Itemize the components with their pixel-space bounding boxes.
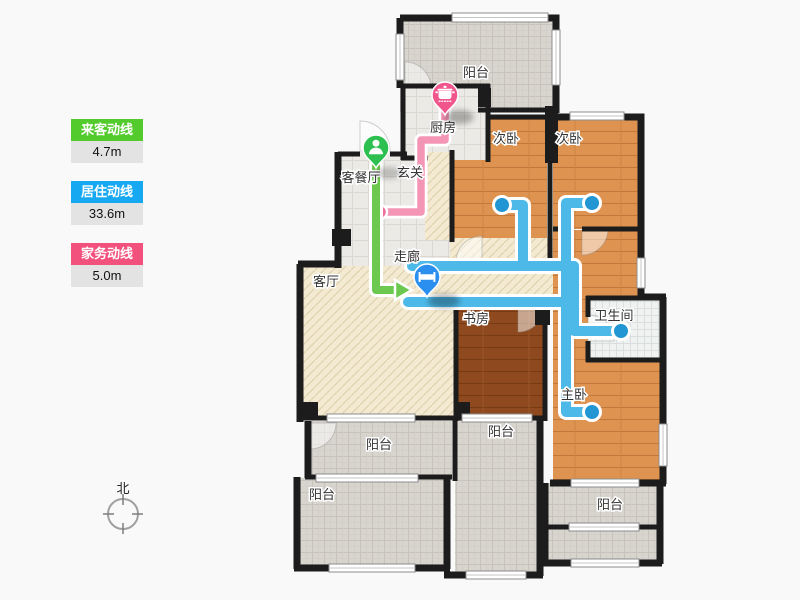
room-label-balcony-bottom-right: 阳台 [597,497,623,512]
living-route-endpoint-dot [613,323,630,340]
column [478,88,491,107]
compass-ticks [103,494,143,534]
legend-guest-value: 4.7m [71,141,143,163]
room-balcony-center-floor [455,418,540,575]
legend-living-route: 居住动线 33.6m [71,181,143,225]
room-label-balcony-center: 阳台 [488,424,514,439]
column [302,402,318,418]
room-label-bathroom: 卫生间 [594,308,633,323]
compass: 北 [103,481,143,534]
living-route-endpoint-dot [584,195,601,212]
room-label-bedroom-b: 次卧 [556,131,582,146]
legend-living-label: 居住动线 [71,181,143,203]
room-label-balcony-top: 阳台 [463,65,489,80]
room-label-study: 书房 [463,311,489,326]
north-label: 北 [116,481,129,496]
room-label-corridor: 走廊 [394,249,420,264]
legend-chore-value: 5.0m [71,265,143,287]
legend-chore-label: 家务动线 [71,243,143,265]
room-terrace-strip-floor [545,527,660,563]
room-label-living: 客厅 [313,274,339,289]
room-label-master: 主卧 [561,387,587,402]
legend-guest-route: 来客动线 4.7m [71,119,143,163]
legend-guest-label: 来客动线 [71,119,143,141]
room-label-balcony-bottom-left: 阳台 [309,487,335,502]
room-label-bedroom-a: 次卧 [493,131,519,146]
living-route-endpoint-dot [584,404,601,421]
room-label-dining: 客餐厅 [341,170,380,185]
legend-living-value: 33.6m [71,203,143,225]
column [332,229,351,246]
room-entry-floor [425,152,452,240]
route-legend: 来客动线 4.7m 居住动线 33.6m 家务动线 5.0m [71,119,143,305]
living-route-endpoint-dot [494,197,511,214]
legend-chore-route: 家务动线 5.0m [71,243,143,287]
room-label-balcony-mid: 阳台 [366,437,392,452]
